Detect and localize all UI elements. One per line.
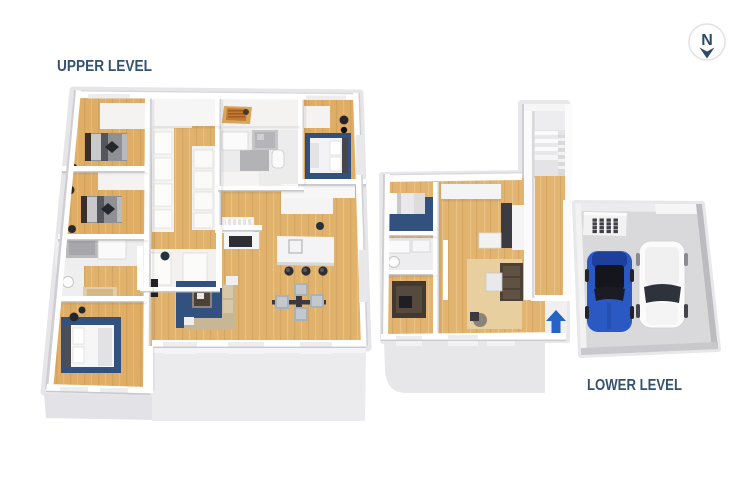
- svg-text:N: N: [701, 32, 713, 49]
- svg-text:LOWER LEVEL: LOWER LEVEL: [587, 377, 682, 394]
- svg-text:UPPER LEVEL: UPPER LEVEL: [57, 58, 152, 75]
